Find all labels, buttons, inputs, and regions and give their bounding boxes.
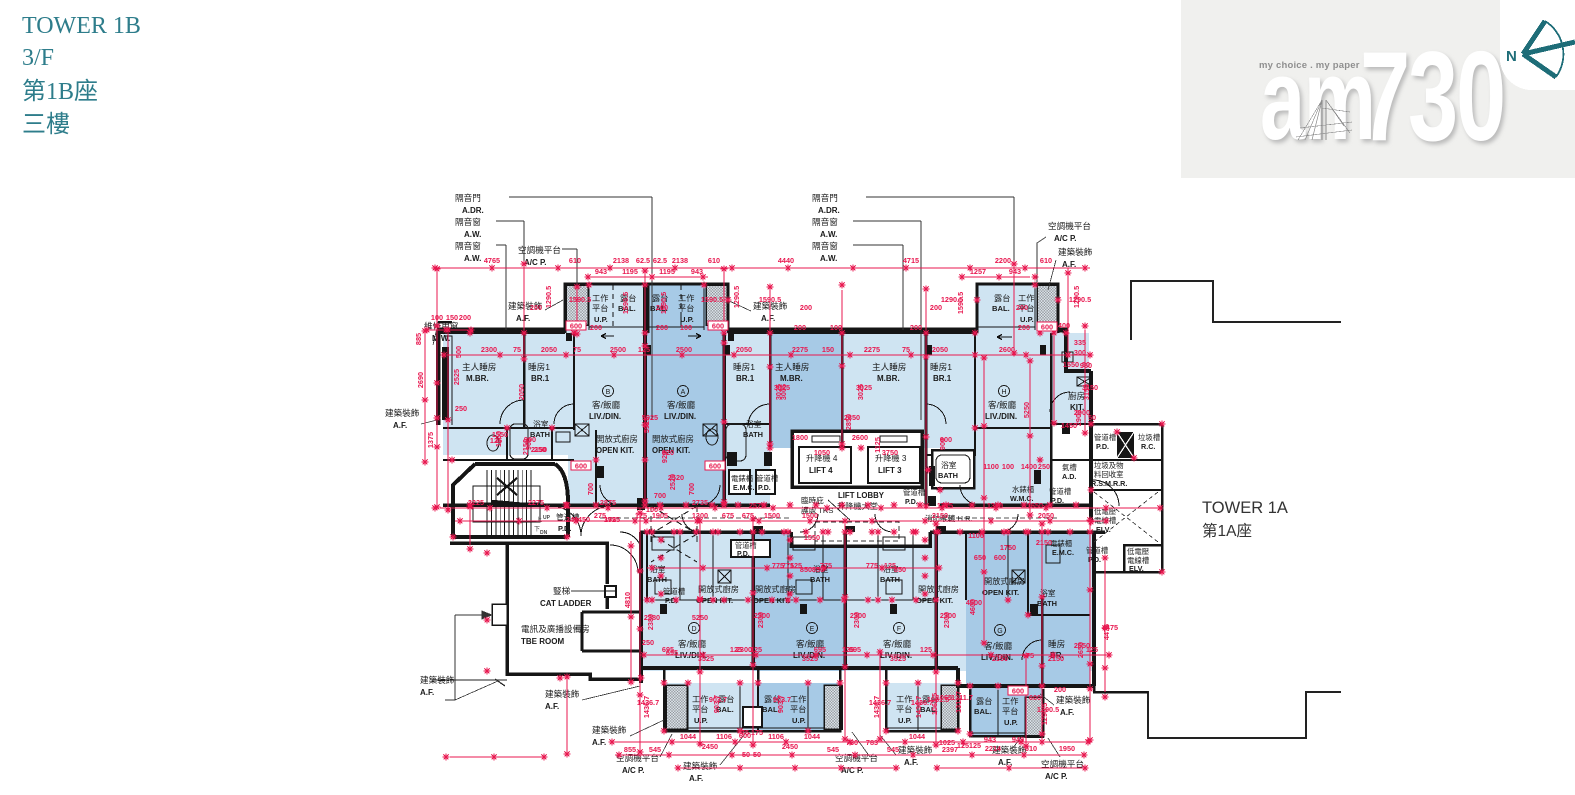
- svg-text:露台: 露台: [976, 696, 992, 706]
- svg-text:610: 610: [1040, 256, 1052, 265]
- svg-text:BAL.: BAL.: [992, 304, 1010, 313]
- svg-text:2050: 2050: [932, 345, 948, 354]
- svg-text:第1A座: 第1A座: [1202, 522, 1252, 540]
- svg-text:三樓: 三樓: [22, 111, 70, 138]
- svg-text:開放式廚房: 開放式廚房: [984, 576, 1025, 586]
- svg-text:4440: 4440: [778, 256, 794, 265]
- svg-text:U.P.: U.P.: [694, 716, 708, 725]
- svg-text:D: D: [691, 626, 696, 633]
- svg-text:A.W.: A.W.: [464, 230, 481, 239]
- svg-text:隔音窗: 隔音窗: [455, 216, 481, 227]
- svg-text:A.F.: A.F.: [1060, 708, 1074, 717]
- svg-text:1300: 1300: [692, 511, 708, 520]
- svg-text:2650: 2650: [1076, 642, 1085, 658]
- svg-text:100: 100: [1002, 462, 1014, 471]
- svg-text:管道槽: 管道槽: [1049, 487, 1072, 496]
- svg-text:BR.1: BR.1: [736, 374, 755, 383]
- svg-text:250: 250: [1038, 462, 1050, 471]
- svg-text:建築裝飾: 建築裝飾: [385, 407, 420, 418]
- svg-text:睡房1: 睡房1: [733, 361, 755, 372]
- svg-text:BR.1: BR.1: [531, 374, 550, 383]
- svg-text:1500: 1500: [764, 511, 780, 520]
- svg-text:客/飯廳: 客/飯廳: [984, 640, 1013, 651]
- svg-text:開放式廚房: 開放式廚房: [596, 434, 638, 444]
- svg-text:2150: 2150: [1036, 538, 1052, 547]
- svg-text:1290.5: 1290.5: [1040, 703, 1049, 725]
- svg-text:700: 700: [687, 483, 696, 495]
- svg-text:電錶櫃: 電錶櫃: [731, 474, 754, 483]
- svg-text:2575: 2575: [749, 501, 765, 510]
- svg-text:1800: 1800: [792, 433, 808, 442]
- svg-text:4475: 4475: [1102, 624, 1111, 640]
- svg-text:隔音門: 隔音門: [812, 192, 838, 203]
- svg-text:200: 200: [1016, 303, 1028, 312]
- svg-text:A.DR.: A.DR.: [462, 206, 484, 215]
- svg-text:125: 125: [969, 741, 981, 750]
- svg-text:工作: 工作: [1018, 293, 1034, 303]
- svg-text:OPEN KIT.: OPEN KIT.: [982, 588, 1019, 597]
- svg-text:低電壓: 低電壓: [1127, 547, 1150, 556]
- svg-text:1100: 1100: [983, 462, 999, 471]
- svg-text:建築裝飾: 建築裝飾: [545, 688, 580, 699]
- svg-text:250: 250: [642, 638, 654, 647]
- svg-text:B: B: [606, 389, 611, 396]
- svg-text:A.F.: A.F.: [761, 314, 775, 323]
- svg-text:75: 75: [573, 345, 581, 354]
- svg-text:平台: 平台: [1002, 706, 1018, 716]
- svg-text:100: 100: [646, 505, 658, 514]
- svg-text:平台: 平台: [678, 303, 694, 313]
- svg-text:客/飯廳: 客/飯廳: [988, 399, 1017, 410]
- svg-text:1195: 1195: [659, 267, 675, 276]
- svg-text:200: 200: [656, 323, 668, 332]
- svg-text:N: N: [1506, 48, 1517, 65]
- svg-text:3/F: 3/F: [22, 45, 54, 71]
- svg-text:200: 200: [910, 323, 922, 332]
- svg-text:600: 600: [570, 322, 582, 331]
- svg-text:1775: 1775: [937, 501, 953, 510]
- svg-text:903.7: 903.7: [712, 695, 721, 713]
- svg-text:2275: 2275: [864, 345, 880, 354]
- svg-text:1550: 1550: [1063, 360, 1079, 369]
- svg-text:BATH: BATH: [1037, 599, 1057, 608]
- svg-text:1044: 1044: [804, 732, 821, 741]
- svg-text:LIFT LOBBY: LIFT LOBBY: [838, 491, 885, 500]
- svg-text:A.F.: A.F.: [689, 774, 703, 783]
- svg-text:850: 850: [894, 565, 906, 574]
- svg-text:2300: 2300: [736, 645, 752, 654]
- svg-text:DN: DN: [540, 530, 548, 536]
- svg-text:A/C P.: A/C P.: [1045, 772, 1068, 781]
- svg-text:855: 855: [624, 745, 636, 754]
- svg-text:545: 545: [827, 745, 839, 754]
- svg-text:2735: 2735: [692, 498, 708, 507]
- svg-text:A.F.: A.F.: [592, 738, 606, 747]
- svg-text:1044: 1044: [909, 732, 926, 741]
- svg-text:LIFT 4: LIFT 4: [809, 466, 833, 475]
- svg-text:管道槽: 管道槽: [1094, 433, 1117, 442]
- svg-text:943: 943: [595, 267, 607, 276]
- svg-text:600: 600: [739, 731, 751, 740]
- svg-text:A.F.: A.F.: [545, 702, 559, 711]
- svg-text:2300: 2300: [852, 612, 861, 628]
- svg-text:610: 610: [708, 256, 720, 265]
- svg-text:2050: 2050: [1038, 511, 1054, 520]
- svg-text:450: 450: [578, 515, 590, 524]
- svg-text:3525: 3525: [802, 654, 818, 663]
- svg-text:2450: 2450: [702, 742, 718, 751]
- svg-text:A: A: [681, 389, 686, 396]
- svg-text:600: 600: [1041, 323, 1053, 332]
- svg-text:695: 695: [814, 645, 826, 654]
- svg-text:885: 885: [414, 333, 423, 345]
- svg-text:300: 300: [1074, 348, 1086, 357]
- svg-text:200: 200: [930, 303, 942, 312]
- svg-text:3025: 3025: [856, 384, 865, 400]
- svg-text:F: F: [897, 626, 901, 633]
- svg-text:5250: 5250: [1022, 402, 1031, 418]
- svg-text:1550: 1550: [494, 431, 503, 447]
- svg-text:2500: 2500: [676, 345, 692, 354]
- svg-text:U.P.: U.P.: [792, 716, 806, 725]
- svg-text:1500: 1500: [802, 511, 818, 520]
- svg-text:1590.5: 1590.5: [569, 295, 591, 304]
- svg-text:4810: 4810: [623, 592, 632, 608]
- svg-text:電錶櫃: 電錶櫃: [1050, 539, 1073, 548]
- svg-text:上: 上: [536, 516, 542, 524]
- svg-text:1650: 1650: [1027, 501, 1043, 510]
- svg-text:P.D.: P.D.: [905, 499, 918, 506]
- svg-text:150: 150: [446, 313, 458, 322]
- svg-text:2050: 2050: [541, 345, 557, 354]
- svg-text:am: am: [1260, 35, 1375, 165]
- svg-text:隔音門: 隔音門: [455, 192, 481, 203]
- svg-text:建築裝飾: 建築裝飾: [683, 760, 718, 771]
- svg-text:1436.7: 1436.7: [642, 696, 651, 718]
- svg-text:LIV./DIN.: LIV./DIN.: [985, 412, 1017, 421]
- svg-text:125: 125: [920, 645, 932, 654]
- svg-text:1106: 1106: [768, 732, 784, 741]
- svg-text:2525: 2525: [452, 369, 461, 385]
- svg-text:睡房1: 睡房1: [930, 361, 952, 372]
- svg-text:臨時庇: 臨時庇: [801, 495, 824, 505]
- svg-text:610: 610: [569, 256, 581, 265]
- svg-text:943: 943: [1009, 267, 1021, 276]
- svg-text:E: E: [810, 626, 815, 633]
- svg-text:3750: 3750: [882, 448, 898, 457]
- svg-text:2350: 2350: [992, 654, 1008, 663]
- svg-text:垃圾及物: 垃圾及物: [1094, 461, 1124, 470]
- svg-text:2300: 2300: [481, 345, 497, 354]
- svg-text:75: 75: [902, 345, 910, 354]
- svg-text:200: 200: [590, 323, 602, 332]
- svg-text:1061.5: 1061.5: [930, 693, 939, 715]
- svg-text:工作: 工作: [592, 293, 608, 303]
- svg-text:610: 610: [1025, 744, 1037, 753]
- svg-text:開放式廚房: 開放式廚房: [698, 584, 739, 594]
- svg-text:2850: 2850: [844, 414, 853, 430]
- svg-text:隔音窗: 隔音窗: [812, 240, 838, 251]
- svg-text:M.BR.: M.BR.: [877, 374, 900, 383]
- svg-text:1257: 1257: [970, 267, 986, 276]
- svg-text:1100: 1100: [968, 531, 984, 540]
- svg-text:睡房: 睡房: [1048, 638, 1065, 649]
- svg-text:管道槽: 管道槽: [1086, 546, 1109, 555]
- svg-text:695: 695: [849, 645, 861, 654]
- svg-text:空調機平台: 空調機平台: [1041, 758, 1084, 769]
- svg-text:1290.5: 1290.5: [544, 286, 553, 308]
- svg-text:BAL.: BAL.: [974, 707, 992, 716]
- svg-text:1750: 1750: [1000, 543, 1016, 552]
- svg-text:1375: 1375: [426, 432, 435, 448]
- svg-text:2138: 2138: [613, 256, 629, 265]
- svg-text:空調機平台: 空調機平台: [518, 244, 561, 255]
- svg-text:200: 200: [530, 303, 542, 312]
- svg-text:200: 200: [1018, 323, 1030, 332]
- svg-text:BR.1: BR.1: [933, 374, 952, 383]
- svg-text:150: 150: [822, 345, 834, 354]
- svg-text:4765: 4765: [484, 256, 500, 265]
- svg-text:1950: 1950: [1059, 744, 1075, 753]
- svg-text:2150: 2150: [932, 511, 948, 520]
- svg-text:5250: 5250: [692, 613, 708, 622]
- svg-text:A.W.: A.W.: [820, 254, 837, 263]
- svg-text:氣槽: 氣槽: [1062, 463, 1077, 472]
- svg-text:2150: 2150: [521, 439, 530, 455]
- svg-text:BATH: BATH: [880, 575, 900, 584]
- svg-text:A.D.: A.D.: [1062, 472, 1076, 481]
- svg-text:A/C P.: A/C P.: [524, 258, 547, 267]
- svg-text:2397: 2397: [942, 745, 958, 754]
- svg-text:903.7: 903.7: [776, 695, 785, 713]
- svg-text:3150: 3150: [1082, 384, 1091, 400]
- svg-text:電訊及廣播設備房: 電訊及廣播設備房: [521, 623, 590, 634]
- svg-text:1044: 1044: [680, 732, 697, 741]
- svg-text:695: 695: [666, 648, 678, 657]
- svg-text:A.F.: A.F.: [420, 688, 434, 697]
- svg-text:A.F.: A.F.: [393, 421, 407, 430]
- svg-text:平台: 平台: [790, 704, 806, 714]
- svg-text:1300: 1300: [987, 501, 1003, 510]
- svg-text:62.5: 62.5: [636, 256, 650, 265]
- svg-text:2900: 2900: [1074, 410, 1083, 426]
- svg-text:3525: 3525: [698, 654, 714, 663]
- svg-text:UP: UP: [543, 515, 551, 521]
- svg-text:75: 75: [513, 345, 521, 354]
- svg-text:U.P.: U.P.: [1004, 718, 1018, 727]
- svg-text:100: 100: [830, 323, 842, 332]
- svg-text:200: 200: [800, 303, 812, 312]
- svg-text:1590.5: 1590.5: [621, 292, 630, 314]
- svg-text:垃圾槽: 垃圾槽: [1138, 433, 1161, 442]
- svg-text:隔音窗: 隔音窗: [455, 240, 481, 251]
- svg-text:OPEN KIT.: OPEN KIT.: [596, 446, 634, 455]
- svg-text:500: 500: [454, 346, 463, 358]
- svg-text:G: G: [997, 628, 1002, 635]
- svg-text:LIFT 3: LIFT 3: [878, 466, 902, 475]
- svg-text:5925: 5925: [642, 417, 651, 433]
- svg-text:客/飯廳: 客/飯廳: [678, 638, 707, 649]
- svg-text:250: 250: [455, 404, 467, 413]
- svg-text:管道槽: 管道槽: [756, 474, 779, 483]
- svg-text:960: 960: [1080, 361, 1092, 370]
- svg-text:建築裝飾: 建築裝飾: [592, 724, 627, 735]
- svg-text:4715: 4715: [903, 256, 919, 265]
- svg-text:M.BR.: M.BR.: [466, 374, 489, 383]
- svg-text:2500: 2500: [610, 345, 626, 354]
- svg-text:75: 75: [1026, 651, 1034, 660]
- svg-text:1290.5: 1290.5: [732, 286, 741, 308]
- svg-text:943: 943: [691, 267, 703, 276]
- svg-text:1400: 1400: [1021, 462, 1037, 471]
- svg-text:2275: 2275: [528, 498, 544, 507]
- svg-text:1436.7: 1436.7: [872, 696, 881, 718]
- svg-text:A.F.: A.F.: [516, 314, 530, 323]
- svg-text:TOWER 1A: TOWER 1A: [1202, 499, 1288, 517]
- svg-text:2450: 2450: [782, 742, 798, 751]
- svg-text:730: 730: [1360, 26, 1504, 168]
- svg-text:客/飯廳: 客/飯廳: [592, 399, 621, 410]
- svg-text:850: 850: [800, 565, 812, 574]
- svg-text:1925: 1925: [604, 515, 620, 524]
- svg-text:600: 600: [1029, 693, 1041, 702]
- svg-text:100: 100: [431, 313, 443, 322]
- svg-text:P.D.: P.D.: [737, 551, 750, 558]
- svg-text:開放式廚房: 開放式廚房: [652, 434, 694, 444]
- svg-text:建築裝飾: 建築裝飾: [1058, 246, 1093, 257]
- svg-text:200: 200: [794, 323, 806, 332]
- svg-text:1590.5: 1590.5: [956, 292, 965, 314]
- svg-text:2300: 2300: [942, 612, 951, 628]
- svg-text:LIV./DIN.: LIV./DIN.: [664, 412, 696, 421]
- svg-text:P.D.: P.D.: [558, 524, 571, 533]
- svg-text:650: 650: [974, 553, 986, 562]
- svg-text:1590.5: 1590.5: [759, 295, 781, 304]
- svg-text:675: 675: [742, 511, 754, 520]
- svg-text:P.D.: P.D.: [758, 485, 771, 492]
- svg-text:600: 600: [994, 553, 1006, 562]
- svg-text:2214: 2214: [985, 744, 1002, 753]
- svg-text:A.F.: A.F.: [904, 758, 918, 767]
- svg-text:2138: 2138: [672, 256, 688, 265]
- svg-text:料回收室: 料回收室: [1094, 470, 1124, 479]
- svg-text:M.BR.: M.BR.: [780, 374, 803, 383]
- svg-text:U.P.: U.P.: [898, 716, 912, 725]
- svg-text:2050: 2050: [736, 345, 752, 354]
- svg-text:943: 943: [984, 735, 996, 744]
- svg-text:BATH: BATH: [938, 471, 958, 480]
- svg-text:TOWER 1B: TOWER 1B: [22, 13, 141, 39]
- svg-text:睡房1: 睡房1: [528, 361, 550, 372]
- svg-text:空調機平台: 空調機平台: [1048, 220, 1091, 231]
- svg-text:浴室: 浴室: [941, 460, 957, 470]
- svg-text:豎梯: 豎梯: [553, 585, 571, 596]
- svg-text:A.W.: A.W.: [820, 230, 837, 239]
- svg-text:335: 335: [1074, 338, 1086, 347]
- svg-text:2150: 2150: [1048, 654, 1064, 663]
- svg-text:露台: 露台: [994, 293, 1010, 303]
- svg-text:E.M.C.: E.M.C.: [1052, 548, 1074, 557]
- svg-text:1590.5: 1590.5: [701, 295, 723, 304]
- svg-text:600: 600: [1012, 687, 1024, 696]
- svg-text:1106: 1106: [716, 732, 732, 741]
- svg-text:平台: 平台: [592, 303, 608, 313]
- svg-text:工作: 工作: [1002, 696, 1018, 706]
- svg-text:1311.7: 1311.7: [954, 691, 963, 713]
- svg-text:2600: 2600: [852, 433, 868, 442]
- svg-text:50: 50: [1088, 413, 1096, 422]
- svg-text:1550: 1550: [804, 533, 820, 542]
- svg-text:600: 600: [712, 322, 724, 331]
- svg-text:A.W.: A.W.: [464, 254, 481, 263]
- svg-text:1590.5: 1590.5: [659, 292, 668, 314]
- svg-text:545: 545: [887, 745, 899, 754]
- svg-text:主人睡房: 主人睡房: [462, 361, 496, 372]
- svg-text:P.D.: P.D.: [1051, 496, 1064, 505]
- svg-text:2600: 2600: [999, 345, 1015, 354]
- svg-text:水錶櫃: 水錶櫃: [1012, 485, 1035, 494]
- svg-text:A/C P.: A/C P.: [841, 766, 864, 775]
- svg-text:TBE ROOM: TBE ROOM: [521, 637, 564, 646]
- svg-text:客/飯廳: 客/飯廳: [883, 638, 912, 649]
- svg-text:1436.7: 1436.7: [914, 696, 923, 718]
- svg-text:50: 50: [753, 750, 761, 759]
- svg-text:1195: 1195: [622, 267, 638, 276]
- svg-text:LIV./DIN.: LIV./DIN.: [589, 412, 621, 421]
- svg-text:浴室: 浴室: [533, 419, 549, 429]
- svg-text:浴室: 浴室: [746, 419, 762, 429]
- svg-text:1050: 1050: [814, 448, 830, 457]
- svg-text:H: H: [1001, 389, 1006, 396]
- svg-text:600: 600: [575, 462, 587, 471]
- svg-text:BATH: BATH: [810, 575, 830, 584]
- svg-text:管道槽: 管道槽: [903, 488, 926, 497]
- svg-text:545: 545: [649, 745, 661, 754]
- svg-text:2875: 2875: [600, 498, 616, 507]
- svg-text:R.C.: R.C.: [1141, 442, 1155, 451]
- svg-text:BATH: BATH: [743, 430, 763, 439]
- svg-text:2225: 2225: [468, 498, 484, 507]
- svg-text:ELV.: ELV.: [1096, 525, 1111, 534]
- svg-text:ELV.: ELV.: [1129, 564, 1144, 573]
- svg-text:600: 600: [709, 462, 721, 471]
- svg-text:A.F.: A.F.: [998, 758, 1012, 767]
- svg-text:CAT LADDER: CAT LADDER: [540, 599, 592, 608]
- svg-text:建築裝飾: 建築裝飾: [1056, 694, 1091, 705]
- svg-text:2690: 2690: [416, 372, 425, 388]
- svg-text:3525: 3525: [890, 654, 906, 663]
- svg-text:主人睡房: 主人睡房: [775, 361, 809, 372]
- svg-text:250: 250: [534, 445, 546, 454]
- svg-text:900: 900: [938, 438, 947, 450]
- svg-text:1125: 1125: [873, 437, 882, 453]
- svg-text:2300: 2300: [756, 612, 765, 628]
- svg-text:管道槽: 管道槽: [663, 587, 686, 596]
- svg-text:主人睡房: 主人睡房: [872, 361, 906, 372]
- svg-text:125: 125: [957, 741, 969, 750]
- svg-text:249: 249: [566, 515, 578, 524]
- svg-text:775: 775: [866, 561, 878, 570]
- svg-text:100: 100: [680, 323, 692, 332]
- svg-text:A/C P.: A/C P.: [1054, 234, 1077, 243]
- svg-text:730: 730: [846, 738, 858, 747]
- svg-text:920: 920: [660, 451, 669, 463]
- svg-text:850: 850: [812, 565, 824, 574]
- svg-text:4600: 4600: [968, 599, 977, 615]
- svg-text:200: 200: [459, 313, 471, 322]
- svg-text:2275: 2275: [792, 345, 808, 354]
- svg-text:3005: 3005: [779, 384, 788, 400]
